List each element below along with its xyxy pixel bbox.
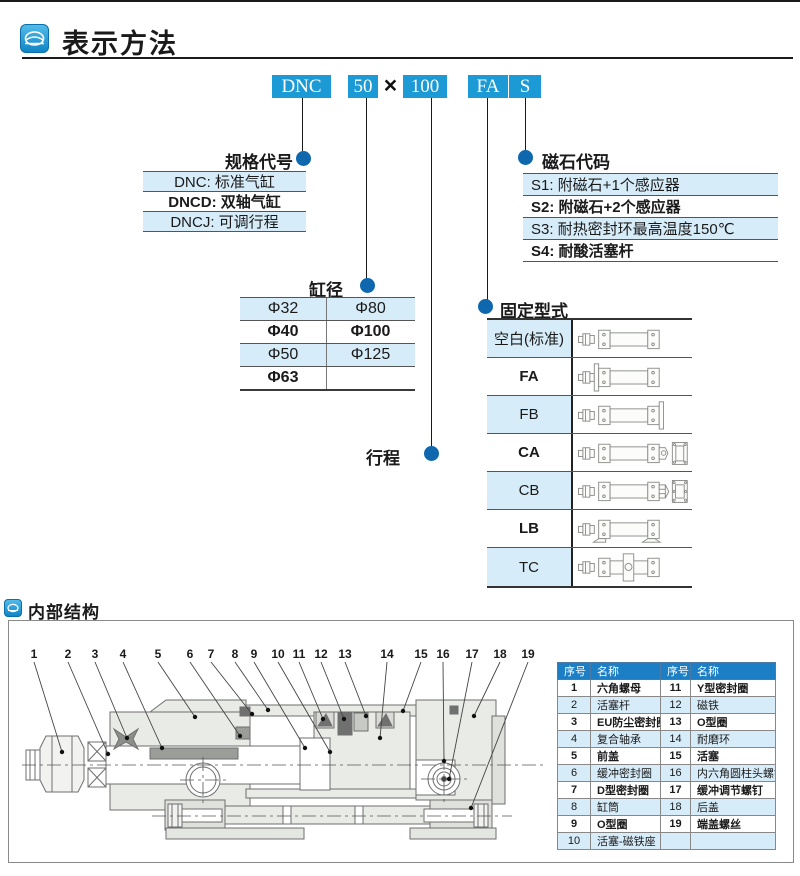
part-name: 缓冲密封圈: [591, 765, 661, 782]
part-callout-number: 12: [314, 647, 328, 661]
list-item: S3: 耐热密封环最高温度150℃: [523, 217, 778, 239]
part-number: 9: [558, 816, 591, 833]
leader-dot: [303, 746, 307, 750]
leader-dot: [442, 759, 446, 763]
part-callout-number: 11: [293, 647, 306, 661]
bore-value: Φ80: [327, 298, 414, 320]
dot-spec: [296, 151, 311, 166]
dot-stroke: [424, 446, 439, 461]
part-number: 13: [661, 714, 691, 731]
mount-type-table: 空白(标准)FAFBCACBLBTC: [487, 318, 692, 588]
code-box-magnet: S: [509, 75, 541, 98]
section-icon: [4, 599, 22, 617]
spec-code-list: DNC: 标准气缸DNCD: 双轴气缸DNCJ: 可调行程: [143, 171, 306, 232]
part-name: 磁铁: [691, 697, 776, 714]
connector-stroke: [431, 98, 432, 447]
part-name: 活塞-磁铁座: [591, 833, 661, 850]
leader-dot: [266, 708, 270, 712]
mount-label: LB: [487, 510, 573, 547]
bore-value: Φ32: [240, 298, 327, 320]
connector-spec: [302, 98, 303, 151]
bore-table: Φ32Φ80Φ40Φ100Φ50Φ125Φ63: [240, 297, 415, 391]
mount-label: CA: [487, 434, 573, 471]
leader-dot: [472, 714, 476, 718]
mount-label: TC: [487, 548, 573, 586]
leader-dot: [321, 717, 325, 721]
leader-dot: [342, 717, 346, 721]
parts-row: 9O型圈19端盖螺丝: [558, 816, 776, 833]
part-number: 11: [661, 680, 691, 697]
mount-row: CA: [487, 434, 692, 472]
page-title: 表示方法: [62, 22, 178, 61]
bore-row: Φ40Φ100: [240, 321, 415, 344]
list-item: S4: 耐酸活塞杆: [523, 239, 778, 261]
part-callout-number: 9: [251, 647, 258, 661]
bore-row: Φ63: [240, 367, 415, 389]
leader-dot: [238, 734, 242, 738]
mount-row: FA: [487, 358, 692, 396]
part-name: 前盖: [591, 748, 661, 765]
part-callout-number: 18: [493, 647, 507, 661]
part-callout-number: 14: [380, 647, 394, 661]
part-callout-number: 6: [187, 647, 194, 661]
mount-label: FA: [487, 358, 573, 395]
leader-dot: [106, 752, 110, 756]
part-name: Y型密封圈: [691, 680, 776, 697]
leader-dot: [401, 709, 405, 713]
code-box-bore: 50: [348, 75, 378, 98]
part-number: 18: [661, 799, 691, 816]
list-item: S2: 附磁石+2个感应器: [523, 195, 778, 217]
part-name: D型密封圈: [591, 782, 661, 799]
part-callout-number: 17: [465, 647, 479, 661]
mount-diagram-fb: [573, 396, 690, 433]
mount-row: 空白(标准): [487, 320, 692, 358]
part-callout-number: 7: [208, 647, 215, 661]
part-name: 缸筒: [591, 799, 661, 816]
code-box-mount: FA: [468, 75, 508, 98]
bore-value: Φ40: [240, 321, 327, 343]
parts-header: 名称: [591, 663, 661, 680]
leader-dot: [193, 715, 197, 719]
parts-header: 序号: [558, 663, 591, 680]
part-number: 1: [558, 680, 591, 697]
label-stroke: 行程: [366, 444, 400, 469]
part-callout-number: 19: [521, 647, 535, 661]
top-divider: [0, 0, 800, 2]
leader-dot: [447, 777, 451, 781]
parts-row: 5前盖15活塞: [558, 748, 776, 765]
magnet-code-list: S1: 附磁石+1个感应器S2: 附磁石+2个感应器S3: 耐热密封环最高温度1…: [523, 173, 778, 262]
part-name: 内六角圆柱头螺钉: [691, 765, 776, 782]
leader-dot: [469, 806, 473, 810]
part-name: O型圈: [691, 714, 776, 731]
parts-row: 7D型密封圈17缓冲调节螺钉: [558, 782, 776, 799]
part-name: 活塞: [691, 748, 776, 765]
dot-mount: [478, 299, 493, 314]
mount-row: TC: [487, 548, 692, 586]
mount-label: FB: [487, 396, 573, 433]
parts-row: 4复合轴承14耐磨环: [558, 731, 776, 748]
code-box-stroke: 100: [403, 75, 447, 98]
leader-dot: [250, 712, 254, 716]
part-name: 缓冲调节螺钉: [691, 782, 776, 799]
code-box-series: DNC: [272, 75, 331, 98]
dot-magnet: [518, 150, 533, 165]
mount-diagram-tc: [573, 548, 690, 586]
bore-value: Φ63: [240, 367, 327, 389]
part-callout-number: 3: [92, 647, 99, 661]
part-callout-number: 5: [155, 647, 162, 661]
dot-bore: [360, 278, 375, 293]
list-item: DNCJ: 可调行程: [143, 211, 306, 231]
brand-icon: [20, 24, 49, 53]
parts-row: 6缓冲密封圈16内六角圆柱头螺钉: [558, 765, 776, 782]
parts-header: 序号: [661, 663, 691, 680]
parts-row: 10活塞-磁铁座: [558, 833, 776, 850]
part-callout-number: 13: [338, 647, 352, 661]
title-underline: [22, 57, 793, 59]
part-name: 端盖螺丝: [691, 816, 776, 833]
bore-value: Φ125: [327, 344, 414, 366]
mount-diagram-ca: [573, 434, 690, 471]
part-number: 6: [558, 765, 591, 782]
mount-diagram-cb: [573, 472, 690, 509]
list-item: DNCD: 双轴气缸: [143, 191, 306, 211]
parts-row: 8缸筒18后盖: [558, 799, 776, 816]
parts-table: 序号名称序号名称1六角螺母11Y型密封圈2活塞杆12磁铁3EU防尘密封圈13O型…: [557, 662, 776, 850]
part-name: [691, 833, 776, 850]
mount-diagram-lb: [573, 510, 690, 547]
part-number: 12: [661, 697, 691, 714]
label-spec: 规格代号: [195, 148, 293, 173]
connector-bore: [366, 98, 367, 279]
part-number: 14: [661, 731, 691, 748]
leader-dot: [328, 750, 332, 754]
mount-row: CB: [487, 472, 692, 510]
list-item: S1: 附磁石+1个感应器: [523, 173, 778, 195]
part-name: 耐磨环: [691, 731, 776, 748]
bore-value: Φ50: [240, 344, 327, 366]
leader-dot: [378, 736, 382, 740]
part-number: 19: [661, 816, 691, 833]
bore-row: Φ50Φ125: [240, 344, 415, 367]
part-name: 六角螺母: [591, 680, 661, 697]
part-number: 3: [558, 714, 591, 731]
parts-header: 名称: [691, 663, 776, 680]
connector-magnet: [525, 98, 526, 151]
part-callout-number: 4: [120, 647, 127, 661]
part-callout-number: 16: [436, 647, 450, 661]
section-glyph: [5, 600, 21, 616]
leader-dot: [60, 750, 64, 754]
label-magnet: 磁石代码: [542, 148, 610, 173]
bore-value: [327, 367, 414, 389]
part-name: EU防尘密封圈: [591, 714, 661, 731]
part-callout-number: 2: [65, 647, 72, 661]
catalog-page: 表示方法 DNC 50 × 100 FA S 规格代号 缸径 行程 固定型式 磁…: [0, 0, 800, 876]
parts-row: 1六角螺母11Y型密封圈: [558, 680, 776, 697]
part-number: 16: [661, 765, 691, 782]
part-name: 后盖: [691, 799, 776, 816]
brand-glyph: [21, 25, 48, 52]
bore-value: Φ100: [327, 321, 414, 343]
bore-row: Φ32Φ80: [240, 298, 415, 321]
part-callout-number: 1: [31, 647, 38, 661]
parts-row: 3EU防尘密封圈13O型圈: [558, 714, 776, 731]
part-number: 2: [558, 697, 591, 714]
part-number: [661, 833, 691, 850]
mount-row: FB: [487, 396, 692, 434]
part-number: 4: [558, 731, 591, 748]
part-number: 8: [558, 799, 591, 816]
mount-diagram-basic: [573, 320, 690, 357]
leader-dot: [160, 746, 164, 750]
connector-mount: [487, 98, 488, 300]
part-number: 7: [558, 782, 591, 799]
part-callout-number: 10: [271, 647, 285, 661]
part-number: 15: [661, 748, 691, 765]
leader-dot: [125, 736, 129, 740]
mount-diagram-fa: [573, 358, 690, 395]
part-number: 10: [558, 833, 591, 850]
part-name: 复合轴承: [591, 731, 661, 748]
parts-row: 2活塞杆12磁铁: [558, 697, 776, 714]
part-number: 17: [661, 782, 691, 799]
mount-row: LB: [487, 510, 692, 548]
part-callout-number: 15: [414, 647, 428, 661]
part-name: 活塞杆: [591, 697, 661, 714]
part-number: 5: [558, 748, 591, 765]
code-separator: ×: [377, 72, 404, 98]
list-item: DNC: 标准气缸: [143, 171, 306, 191]
mount-label: 空白(标准): [487, 320, 573, 357]
part-name: O型圈: [591, 816, 661, 833]
leader-dot: [364, 714, 368, 718]
part-callout-number: 8: [232, 647, 239, 661]
mount-label: CB: [487, 472, 573, 509]
